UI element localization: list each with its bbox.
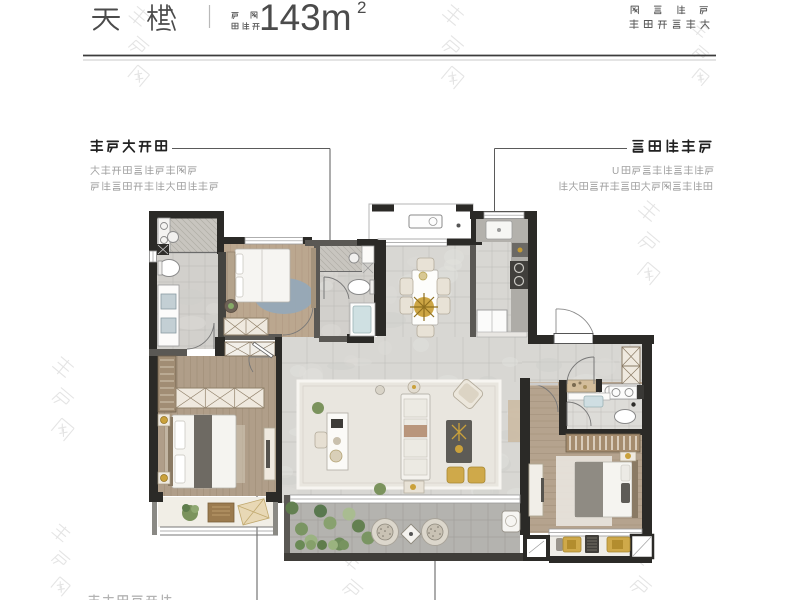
svg-text:U: U: [612, 166, 619, 177]
svg-text:2: 2: [357, 0, 366, 17]
svg-text:143m: 143m: [259, 0, 352, 38]
